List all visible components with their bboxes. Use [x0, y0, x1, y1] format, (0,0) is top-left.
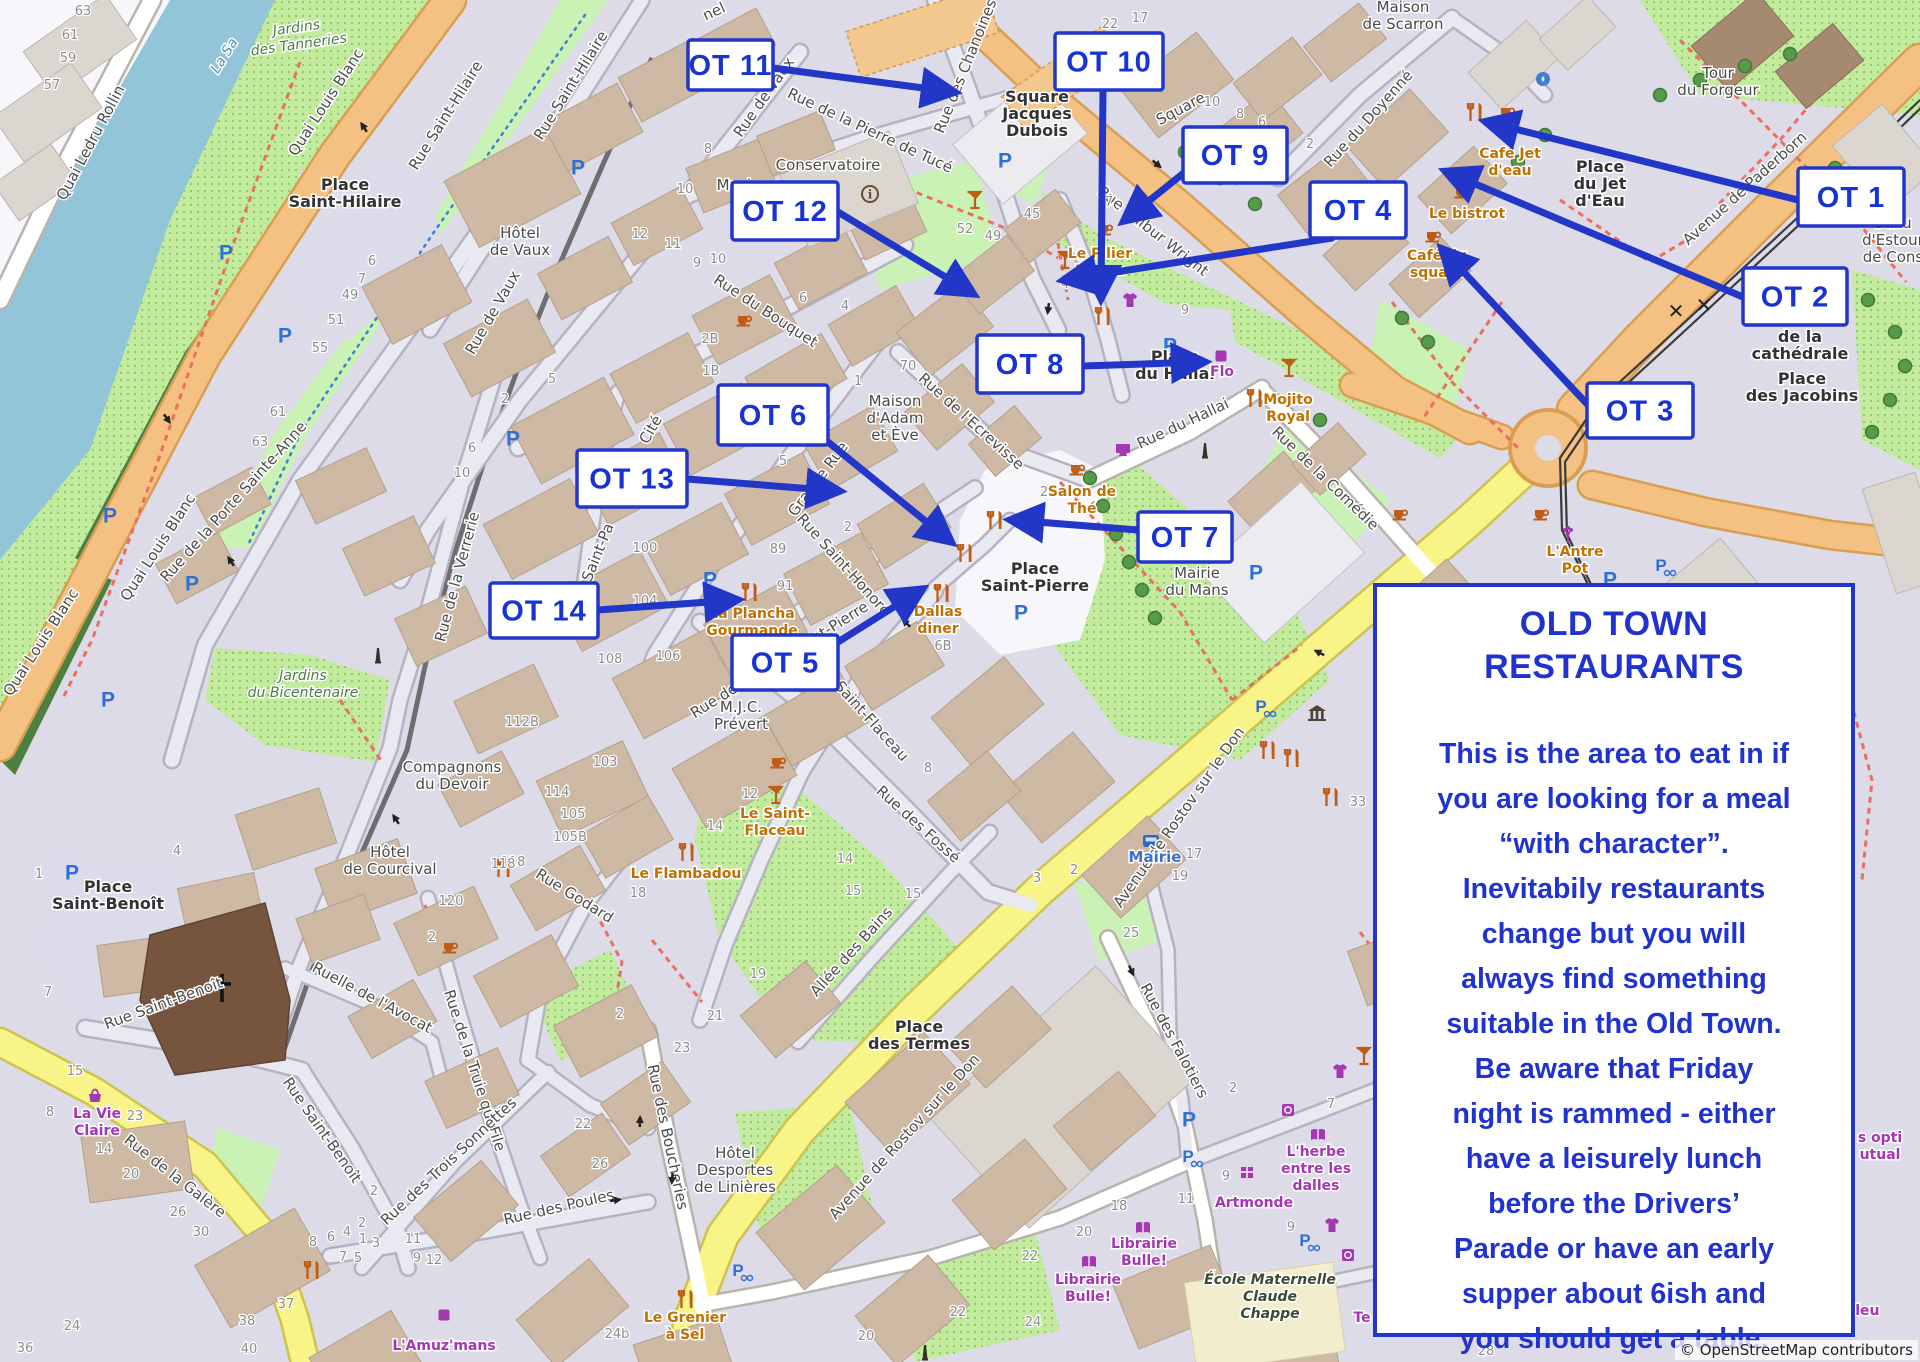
house-number: 15 [67, 1064, 84, 1079]
shop-generic-icon [439, 1310, 450, 1321]
house-number: 9 [693, 256, 701, 271]
label-maison-adam-et-eve: Maisond'Adamet Ève [867, 392, 924, 444]
tree-icon [1654, 89, 1667, 102]
house-number: 4 [173, 844, 181, 859]
tree-icon [1084, 472, 1097, 485]
info-box-title: OLD TOWN RESTAURANTS [1399, 603, 1829, 688]
house-number: 22 [575, 1117, 592, 1132]
tree-icon [1097, 500, 1110, 513]
parking-icon: P [703, 569, 717, 592]
ot-label-text-ot-1: OT 1 [1817, 182, 1885, 214]
label-te-partial: Te [1353, 1310, 1370, 1326]
house-number: 24 [1025, 1315, 1042, 1330]
label-mairie-du-mans: Mairiedu Mans [1165, 564, 1228, 599]
house-number: 22 [950, 1305, 967, 1320]
label-place-du-jet-d-eau: Placedu Jetd'Eau [1574, 157, 1627, 210]
ot-label-text-ot-5: OT 5 [751, 648, 819, 680]
parking-icon: P [65, 862, 79, 885]
house-number: 2 [1070, 863, 1078, 878]
house-number: 5 [779, 454, 787, 469]
house-number: 55 [312, 341, 329, 356]
house-number: 20 [123, 1167, 140, 1182]
svg-text:P: P [185, 573, 199, 596]
svg-text:P: P [1182, 1109, 1196, 1132]
house-number: 2 [370, 1184, 378, 1199]
house-number: 26 [170, 1205, 187, 1220]
house-number: 114 [545, 785, 570, 800]
house-number: 7 [1105, 195, 1113, 210]
info-box-body: This is the area to eat in if you are lo… [1399, 732, 1829, 1362]
house-number: 59 [60, 51, 77, 66]
house-number: 7 [358, 272, 366, 287]
svg-text:P: P [101, 689, 115, 712]
house-number: 22 [1102, 17, 1119, 32]
house-number: 3 [1033, 871, 1041, 886]
house-number: 118 [491, 857, 516, 872]
house-number: 2 [1306, 137, 1314, 152]
label-square-jacques-dubois: SquareJacquesDubois [1001, 87, 1071, 140]
house-number: 9 [413, 1251, 421, 1266]
label-mojito-royal: MojitoRoyal [1263, 392, 1313, 425]
house-number: 2 [428, 930, 436, 945]
house-number: 17 [1186, 847, 1203, 862]
tree-icon [1884, 394, 1897, 407]
house-number: 14 [837, 852, 854, 867]
tree-icon [1784, 48, 1797, 61]
svg-text:P: P [219, 242, 233, 265]
house-number: 5 [548, 372, 556, 387]
shop-gift-icon [1241, 1167, 1253, 1178]
house-number: 23 [674, 1041, 691, 1056]
label-le-saint-flaceau: Le Saint-Flaceau [740, 806, 810, 839]
svg-text:P: P [1249, 562, 1263, 585]
label-conservatoire: Conservatoire [776, 156, 881, 174]
house-number: 120 [439, 894, 464, 909]
house-number: 6 [327, 1230, 335, 1245]
parking-icon: P [1014, 602, 1028, 625]
ot-label-text-ot-4: OT 4 [1324, 195, 1392, 227]
parking-icon: P [185, 573, 199, 596]
house-number: 63 [252, 435, 269, 450]
tree-icon [1249, 198, 1262, 211]
osm-copyright: © OpenStreetMap contributors [1675, 1340, 1918, 1360]
label-s-opti-partial: s optiutual [1858, 1130, 1902, 1163]
house-number: 2B [701, 332, 718, 347]
house-number: 18 [1111, 1199, 1128, 1214]
house-number: 15 [845, 884, 862, 899]
ot-label-text-ot-12: OT 12 [742, 196, 828, 228]
house-number: 17 [1132, 11, 1149, 26]
parking-icon: P [571, 157, 585, 180]
house-number: 12 [742, 787, 759, 802]
label-le-bistrot: Le bistrot [1429, 206, 1506, 222]
house-number: 8 [46, 1105, 54, 1120]
parking-icon: P [1249, 562, 1263, 585]
house-number: 10 [1204, 95, 1221, 110]
house-number: 22 [1022, 1249, 1039, 1264]
house-number: 2 [1229, 1081, 1237, 1096]
oneway-arrow-icon [610, 1200, 620, 1201]
house-number: 19 [1172, 869, 1189, 884]
house-number: 9 [1222, 1169, 1230, 1184]
house-number: 2 [358, 1216, 366, 1231]
house-number: 8 [1236, 107, 1244, 122]
parking-icon: P [506, 428, 520, 451]
tree-icon [1136, 584, 1149, 597]
house-number: 1 [359, 1232, 367, 1247]
house-number: 18 [630, 886, 647, 901]
house-number: 49 [985, 229, 1002, 244]
parking-icon: P [103, 505, 117, 528]
label-flo: Flo [1210, 364, 1234, 380]
fountain-icon [1536, 72, 1550, 86]
shop-laundry-icon [1282, 1104, 1294, 1116]
ot-arrow-ot-8 [1083, 362, 1203, 366]
house-number: 6B [934, 639, 951, 654]
parking-icon: P [219, 242, 233, 265]
house-number: 91 [777, 579, 794, 594]
shop-book-icon [1136, 1222, 1150, 1233]
svg-text:P: P [571, 157, 585, 180]
ot-label-text-ot-3: OT 3 [1606, 396, 1674, 428]
ot-label-text-ot-6: OT 6 [739, 400, 807, 432]
tree-icon [1149, 612, 1162, 625]
oneway-arrow-icon [672, 1173, 673, 1183]
svg-text:P: P [103, 505, 117, 528]
shop-laundry-icon [1342, 1249, 1354, 1261]
label-le-flambadou: Le Flambadou [631, 866, 742, 882]
house-number: 63 [75, 4, 92, 19]
tree-icon [1739, 60, 1752, 73]
house-number: 100 [633, 541, 658, 556]
house-number: 38 [239, 1314, 256, 1329]
level-crossing-icon: ✕ [1668, 299, 1685, 323]
house-number: 7 [1327, 1097, 1335, 1112]
house-number: 4 [343, 1225, 351, 1240]
house-number: 45 [1024, 207, 1041, 222]
svg-text:P: P [506, 428, 520, 451]
house-number: 14 [96, 1142, 113, 1157]
ot-label-text-ot-2: OT 2 [1761, 282, 1829, 314]
svg-text:P: P [998, 150, 1012, 173]
house-number: 2 [616, 1007, 624, 1022]
label-l-amuz-mans: L'Amuz'mans [392, 1338, 495, 1354]
house-number: 112B [505, 715, 539, 730]
house-number: 2 [844, 520, 852, 535]
house-number: 24b [605, 1327, 630, 1342]
house-number: 10 [677, 182, 694, 197]
house-number: 21 [707, 1009, 724, 1024]
house-number: 14 [707, 819, 724, 834]
screenshot-root: ✕✕PPPPPPPPPPPPPPPPPPPPiQuai Ledru Rollin… [0, 0, 1920, 1362]
house-number: 103 [593, 755, 618, 770]
house-number: 2 [501, 392, 509, 407]
house-number: 30 [193, 1225, 210, 1240]
house-number: 3 [372, 1236, 380, 1251]
house-number: 26 [592, 1157, 609, 1172]
parking-icon: P [101, 689, 115, 712]
old-town-restaurants-info-box: OLD TOWN RESTAURANTS This is the area to… [1373, 583, 1855, 1337]
ot-label-text-ot-14: OT 14 [501, 596, 587, 628]
house-number: 33 [1350, 795, 1367, 810]
label-artmonde: Artmonde [1215, 1195, 1293, 1211]
label-mjc-prevert: M.J.C.Prévert [714, 698, 768, 733]
ot-label-text-ot-11: OT 11 [689, 50, 773, 82]
tree-icon [1422, 336, 1435, 349]
house-number: 52 [957, 222, 974, 237]
house-number: 40 [241, 1342, 258, 1357]
house-number: 20 [1076, 1225, 1093, 1240]
house-number: 15 [905, 887, 922, 902]
house-number: 51 [328, 313, 345, 328]
ot-label-text-ot-10: OT 10 [1066, 47, 1152, 79]
label-la-vie-claire: La VieClaire [73, 1106, 121, 1139]
house-number: 19 [750, 967, 767, 982]
house-number: 36 [17, 1341, 34, 1356]
house-number: 11 [405, 1232, 422, 1247]
ot-label-text-ot-7: OT 7 [1151, 522, 1219, 554]
house-number: 4 [841, 299, 849, 314]
house-number: 2 [1040, 485, 1048, 500]
house-number: 108 [598, 652, 623, 667]
oneway-arrow-icon [1048, 303, 1049, 313]
parking-icon: P [1182, 1109, 1196, 1132]
house-number: 8 [924, 761, 932, 776]
ot-label-text-ot-13: OT 13 [589, 464, 675, 496]
tree-icon [1862, 294, 1875, 307]
house-number: 7 [339, 1250, 347, 1265]
shop-book-icon [1311, 1129, 1325, 1140]
house-number: 11 [1178, 1192, 1195, 1207]
house-number: 6 [799, 291, 807, 306]
house-number: 5 [354, 1251, 362, 1266]
tree-icon [1899, 360, 1912, 373]
house-number: 105B [553, 830, 587, 845]
house-number: 1 [854, 374, 862, 389]
house-number: 11 [665, 237, 682, 252]
house-number: 23 [127, 1109, 144, 1124]
house-number: 37 [278, 1297, 295, 1312]
house-number: 25 [1123, 926, 1140, 941]
house-number: 1 [35, 867, 43, 882]
roundabout-center [1535, 435, 1561, 461]
house-number: 7 [44, 985, 52, 1000]
svg-text:P: P [65, 862, 79, 885]
tree-icon [1889, 326, 1902, 339]
ot-arrow-ot-10 [1101, 90, 1103, 297]
house-number: 61 [62, 28, 79, 43]
house-number: 12 [426, 1253, 443, 1268]
label-mairie: Mairie [1129, 848, 1182, 866]
tree-icon [1396, 312, 1409, 325]
house-number: 6 [468, 441, 476, 456]
parking-icon: P [278, 325, 292, 348]
house-number: 8 [309, 1235, 317, 1250]
house-number: 57 [44, 78, 61, 93]
shop-generic-icon [1216, 351, 1227, 362]
house-number: 89 [770, 542, 787, 557]
house-number: 20 [858, 1329, 875, 1344]
house-number: 1B [702, 364, 719, 379]
shop-book-icon [1082, 1256, 1096, 1267]
house-number: 61 [270, 405, 287, 420]
house-number: 70 [900, 359, 917, 374]
parking-icon: P [998, 150, 1012, 173]
house-number: 10 [710, 252, 727, 267]
label-compagnons-du-devoir: Compagnonsdu Devoir [403, 758, 502, 793]
house-number: 105 [561, 807, 586, 822]
svg-text:P: P [1014, 602, 1028, 625]
svg-text:i: i [868, 188, 873, 202]
tree-icon [1123, 556, 1136, 569]
house-number: 10 [454, 466, 471, 481]
tree-icon [1866, 426, 1879, 439]
house-number: 106 [656, 649, 681, 664]
house-number: 49 [342, 288, 359, 303]
house-number: 24 [64, 1319, 81, 1334]
house-number: 8 [704, 142, 712, 157]
ot-label-text-ot-9: OT 9 [1201, 140, 1269, 172]
house-number: 6 [368, 254, 376, 269]
label-dallas-diner: Dallasdiner [914, 604, 962, 637]
svg-text:P: P [278, 325, 292, 348]
house-number: 9 [1181, 303, 1189, 318]
tree-icon [1314, 414, 1327, 427]
level-crossing-icon: ✕ [1696, 293, 1713, 317]
svg-text:P: P [703, 569, 717, 592]
house-number: 12 [632, 227, 649, 242]
house-number: 9 [1287, 1220, 1295, 1235]
ot-label-text-ot-8: OT 8 [996, 349, 1064, 381]
